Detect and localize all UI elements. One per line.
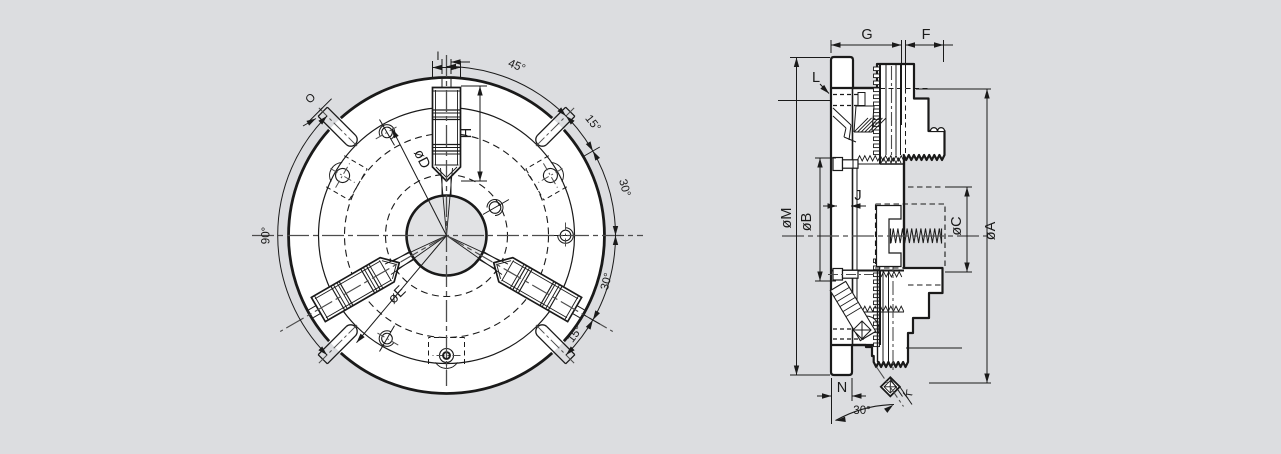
svg-text:30°: 30° <box>599 272 615 292</box>
svg-text:N: N <box>837 380 847 396</box>
svg-text:30°: 30° <box>853 405 870 417</box>
svg-text:øC: øC <box>949 216 965 235</box>
svg-text:45°: 45° <box>506 58 527 76</box>
svg-text:J: J <box>854 188 861 204</box>
svg-text:15°: 15° <box>582 113 602 134</box>
svg-text:H: H <box>459 128 475 138</box>
svg-text:F: F <box>922 27 931 43</box>
svg-text:I: I <box>436 51 439 63</box>
svg-text:G: G <box>861 27 872 43</box>
svg-text:øB: øB <box>799 213 815 232</box>
svg-text:øA: øA <box>983 221 999 240</box>
svg-text:O: O <box>303 91 318 106</box>
svg-text:30°: 30° <box>616 178 632 198</box>
svg-text:L: L <box>812 70 820 86</box>
svg-text:90°: 90° <box>261 227 273 244</box>
svg-text:K: K <box>901 387 915 401</box>
svg-text:øM: øM <box>779 208 795 229</box>
